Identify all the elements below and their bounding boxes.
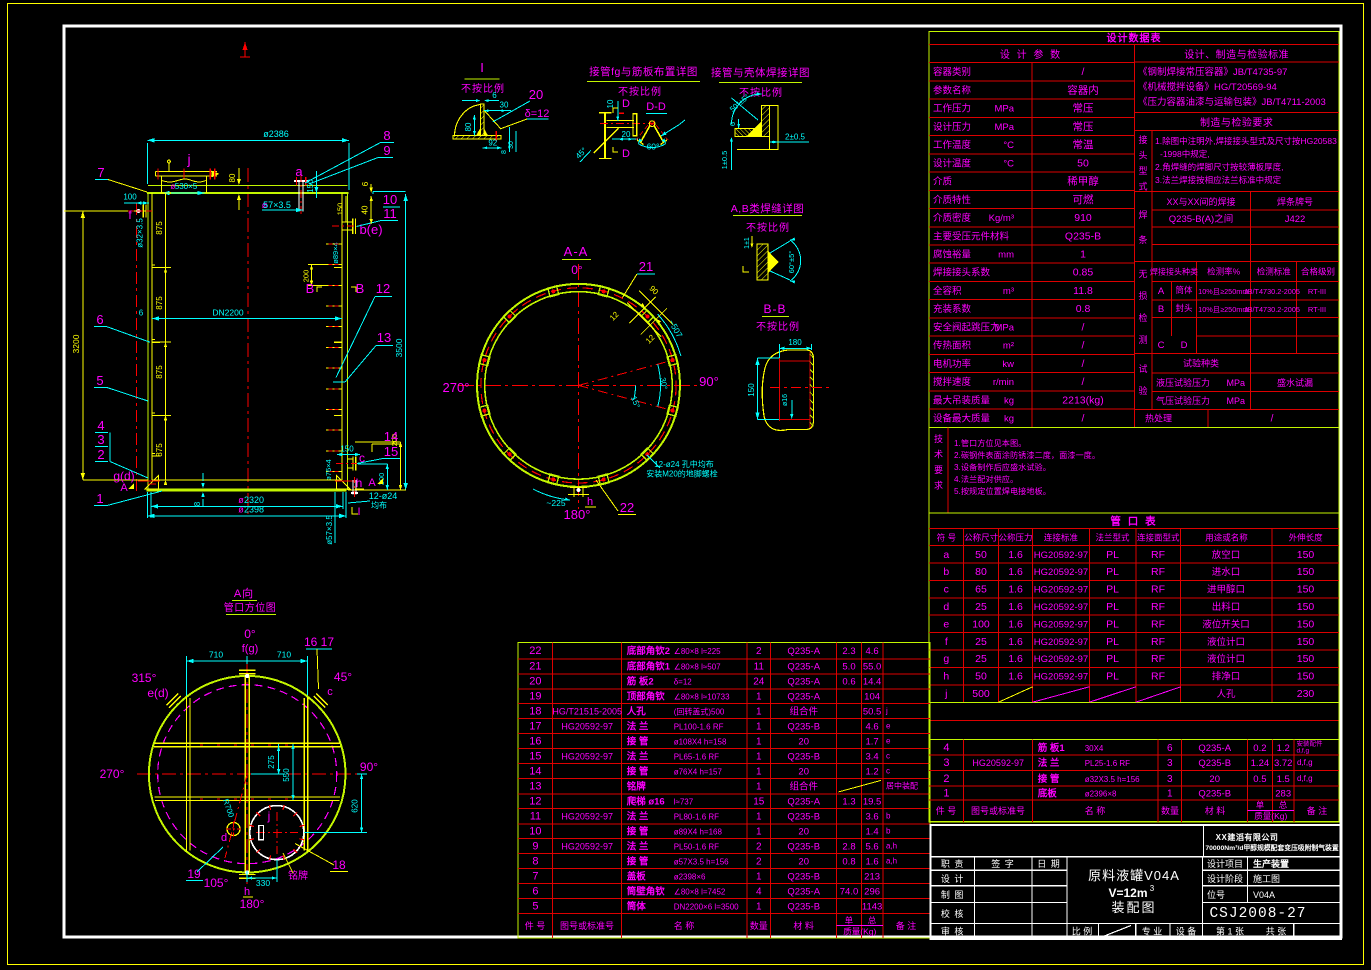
svg-text:A-A: A-A [564, 244, 589, 259]
svg-text:RF: RF [1151, 601, 1165, 613]
svg-text:RT-III: RT-III [1308, 287, 1326, 296]
svg-text:2.8: 2.8 [842, 842, 855, 853]
svg-text:筒体: 筒体 [1175, 285, 1193, 295]
svg-text:HG20592-97: HG20592-97 [972, 758, 1024, 768]
svg-text:RF: RF [1151, 653, 1165, 665]
svg-text:Q235-B: Q235-B [787, 872, 820, 883]
svg-text:接 管: 接 管 [627, 765, 649, 777]
svg-text:°C: °C [1003, 158, 1014, 169]
svg-text:HG20592-97: HG20592-97 [1034, 654, 1088, 665]
svg-text:Q235-B: Q235-B [1198, 758, 1231, 769]
svg-text:顶部角钦: 顶部角钦 [627, 691, 666, 703]
svg-text:3: 3 [1150, 884, 1155, 893]
svg-text:法 兰: 法 兰 [627, 841, 649, 853]
svg-text:I: I [357, 506, 360, 518]
svg-text:A向: A向 [234, 586, 254, 600]
svg-text:1.6: 1.6 [1008, 566, 1023, 578]
svg-text:70000Nm³/d甲醇规模配套变压吸附制气装置: 70000Nm³/d甲醇规模配套变压吸附制气装置 [1205, 843, 1339, 852]
svg-text:外伸长度: 外伸长度 [1289, 533, 1324, 543]
svg-text:接管与壳体焊接详图: 接管与壳体焊接详图 [711, 66, 810, 79]
svg-text:生产装置: 生产装置 [1253, 858, 1289, 869]
svg-text:d,f,g: d,f,g [1297, 774, 1313, 783]
svg-text:/: / [1082, 376, 1085, 388]
svg-text:Q235-B: Q235-B [787, 842, 820, 853]
svg-text:ø16: ø16 [782, 394, 789, 406]
svg-text:150: 150 [747, 383, 756, 397]
svg-text:DN2200×6 l=3500: DN2200×6 l=3500 [674, 902, 739, 911]
svg-text:5: 5 [96, 373, 103, 388]
svg-text:盛水试漏: 盛水试漏 [1277, 377, 1313, 388]
svg-text:50: 50 [1077, 157, 1089, 169]
svg-text:V=12m: V=12m [1108, 886, 1147, 900]
svg-text:b: b [943, 566, 949, 578]
svg-text:HG20592-97: HG20592-97 [561, 842, 613, 852]
svg-text:介质: 介质 [933, 176, 953, 188]
svg-text:230: 230 [1297, 688, 1315, 700]
svg-text:Q235-B(A)之间: Q235-B(A)之间 [1169, 213, 1233, 225]
svg-text:XX建滔有限公司: XX建滔有限公司 [1216, 832, 1279, 842]
svg-text:工作温度: 工作温度 [933, 139, 972, 151]
svg-text:设计项目: 设计项目 [1207, 858, 1243, 869]
svg-text:常压: 常压 [1073, 102, 1095, 115]
svg-text:总: 总 [1279, 800, 1288, 810]
svg-text:液位开关口: 液位开关口 [1202, 618, 1250, 630]
svg-text:21: 21 [639, 259, 653, 274]
svg-text:HG20592-97: HG20592-97 [1034, 672, 1088, 683]
svg-text:盖板: 盖板 [627, 871, 647, 883]
svg-text:焊: 焊 [1138, 209, 1147, 220]
svg-text:D: D [622, 98, 630, 110]
svg-text:7: 7 [532, 871, 538, 883]
svg-text:HG20592-97: HG20592-97 [1034, 567, 1088, 578]
svg-text:RF: RF [1151, 618, 1165, 630]
svg-text:10%且≥250mm: 10%且≥250mm [1198, 287, 1248, 296]
svg-text:d: d [943, 601, 949, 613]
svg-text:19: 19 [529, 691, 541, 703]
svg-text:术: 术 [934, 449, 943, 460]
svg-text:4.6: 4.6 [865, 722, 878, 733]
svg-text:求: 求 [934, 480, 943, 491]
svg-text:底部角钦1: 底部角钦1 [626, 661, 671, 673]
svg-text:最大吊装质量: 最大吊装质量 [933, 394, 991, 406]
svg-text:XX与XX间的焊接: XX与XX间的焊接 [1166, 196, 1235, 207]
svg-text:试: 试 [1138, 363, 1147, 374]
svg-text:j: j [885, 707, 888, 716]
svg-text:比 例: 比 例 [1072, 926, 1093, 937]
svg-text:11: 11 [530, 811, 541, 823]
svg-text:kg: kg [1004, 414, 1014, 425]
svg-text:名 称: 名 称 [674, 920, 695, 931]
svg-text:80: 80 [228, 173, 237, 182]
svg-text:出料口: 出料口 [1212, 601, 1241, 613]
svg-text:2: 2 [756, 842, 762, 853]
svg-text:4: 4 [943, 742, 949, 754]
svg-text:3500: 3500 [394, 338, 404, 357]
svg-text:PL: PL [1106, 618, 1119, 630]
svg-text:《钢制焊接常压容器》JB/T4735-97: 《钢制焊接常压容器》JB/T4735-97 [1138, 66, 1287, 78]
svg-text:管 口 表: 管 口 表 [1110, 515, 1157, 528]
svg-text:6: 6 [1167, 743, 1173, 754]
svg-text:HG20592-97: HG20592-97 [561, 722, 613, 732]
svg-text:270°: 270° [443, 380, 470, 395]
svg-text:设计压力: 设计压力 [933, 121, 971, 133]
svg-text:组合件: 组合件 [789, 781, 818, 793]
svg-text:3: 3 [943, 757, 949, 769]
svg-text:m²: m² [1003, 341, 1014, 352]
svg-text:150: 150 [1297, 584, 1315, 596]
svg-text:8: 8 [532, 856, 538, 868]
svg-text:100: 100 [972, 618, 990, 630]
svg-text:20: 20 [1209, 774, 1220, 785]
svg-text:制造与检验要求: 制造与检验要求 [1200, 116, 1274, 129]
svg-text:150: 150 [1297, 601, 1315, 613]
svg-text:铭牌: 铭牌 [288, 869, 308, 882]
svg-text:Q235-B: Q235-B [787, 901, 820, 912]
svg-text:100: 100 [123, 193, 137, 202]
svg-text:60°: 60° [647, 142, 660, 152]
svg-text:10%且≥250mm: 10%且≥250mm [1198, 305, 1248, 314]
svg-text:/: / [1082, 321, 1085, 333]
svg-text:65: 65 [975, 584, 987, 596]
svg-text:1: 1 [756, 766, 762, 777]
svg-text:1: 1 [1167, 788, 1173, 799]
svg-text:c: c [886, 751, 890, 760]
svg-text:Q235-A: Q235-A [787, 797, 820, 808]
svg-text:c: c [886, 766, 890, 775]
svg-text:爬梯 ø16: 爬梯 ø16 [626, 796, 665, 808]
svg-text:3.72: 3.72 [1274, 758, 1293, 769]
svg-text:1.6: 1.6 [1008, 636, 1023, 648]
svg-text:875: 875 [155, 221, 164, 235]
svg-text:公称尺寸: 公称尺寸 [964, 533, 999, 543]
svg-text:PL: PL [1106, 566, 1119, 578]
svg-text:1: 1 [96, 491, 103, 506]
svg-text:要: 要 [934, 465, 943, 475]
svg-text:Q235-A: Q235-A [787, 646, 820, 657]
svg-text:22: 22 [620, 500, 634, 515]
svg-text:MPa: MPa [994, 104, 1014, 115]
svg-text:HG20592-97: HG20592-97 [1034, 550, 1088, 561]
svg-text:/: / [1082, 358, 1085, 370]
svg-text:m³: m³ [1003, 286, 1014, 297]
svg-text:180°: 180° [564, 507, 591, 522]
svg-text:25: 25 [975, 653, 987, 665]
svg-text:DN2200: DN2200 [212, 308, 243, 318]
svg-text:名 称: 名 称 [1085, 805, 1106, 816]
svg-text:16 17: 16 17 [304, 635, 334, 649]
svg-text:1: 1 [1080, 249, 1086, 261]
svg-text:PL50-1.6 RF: PL50-1.6 RF [674, 843, 719, 852]
svg-text:4: 4 [97, 418, 104, 433]
svg-text:A,B类焊缝详图: A,B类焊缝详图 [731, 202, 804, 215]
svg-text:2: 2 [756, 857, 762, 868]
svg-text:封头: 封头 [1175, 303, 1193, 313]
svg-text:1: 1 [756, 692, 762, 703]
svg-text:50: 50 [975, 671, 987, 683]
svg-text:11: 11 [383, 206, 397, 221]
svg-text:1: 1 [756, 736, 762, 747]
svg-text:8: 8 [193, 501, 202, 506]
svg-text:12-ø24: 12-ø24 [369, 491, 398, 501]
svg-text:传热面积: 传热面积 [933, 340, 972, 352]
svg-text:e: e [886, 722, 891, 731]
svg-text:213: 213 [864, 872, 880, 883]
svg-text:公称压力: 公称压力 [998, 533, 1032, 543]
svg-text:6: 6 [96, 312, 103, 327]
svg-text:r/min: r/min [993, 377, 1014, 388]
svg-text:不按比例: 不按比例 [618, 85, 662, 98]
svg-text:Q235-A: Q235-A [787, 662, 820, 673]
svg-text:150: 150 [340, 445, 354, 454]
svg-text:275: 275 [267, 755, 276, 769]
svg-text:ø108X4 h=158: ø108X4 h=158 [674, 737, 727, 746]
svg-text:设备最大质量: 设备最大质量 [933, 413, 991, 425]
svg-text:3.法兰焊接按相应法兰标准中规定: 3.法兰焊接按相应法兰标准中规定 [1155, 175, 1282, 185]
svg-text:充装系数: 充装系数 [933, 303, 972, 315]
svg-text:单: 单 [1256, 800, 1265, 810]
svg-text:60°±5°: 60°±5° [787, 251, 796, 274]
svg-text:13: 13 [529, 781, 541, 793]
svg-text:20: 20 [798, 766, 809, 777]
svg-text:10: 10 [606, 99, 615, 108]
svg-text:PL: PL [1106, 601, 1119, 613]
svg-text:20: 20 [529, 676, 541, 688]
svg-text:j: j [186, 151, 190, 167]
svg-text:15: 15 [529, 750, 541, 762]
svg-text:6: 6 [728, 122, 737, 126]
svg-text:296: 296 [864, 886, 880, 897]
svg-text:HG20592-97: HG20592-97 [1034, 602, 1088, 613]
svg-text:图号或标准号: 图号或标准号 [560, 920, 614, 931]
svg-text:13: 13 [377, 330, 391, 345]
svg-text:搅拌速度: 搅拌速度 [933, 376, 972, 388]
svg-text:设 计: 设 计 [941, 873, 965, 884]
svg-text:24: 24 [753, 677, 765, 688]
svg-text:工作压力: 工作压力 [933, 103, 971, 115]
svg-text:焊接接头种类: 焊接接头种类 [1150, 267, 1198, 277]
svg-text:3.4: 3.4 [865, 751, 878, 762]
svg-text:第 1 张: 第 1 张 [1216, 926, 1244, 937]
svg-text:g(d): g(d) [113, 469, 134, 483]
svg-text:j: j [267, 809, 271, 823]
svg-text:排净口: 排净口 [1212, 671, 1241, 683]
svg-text:ø32X3.5 h=156: ø32X3.5 h=156 [1085, 775, 1140, 784]
svg-text:热处理: 热处理 [1145, 413, 1172, 424]
svg-text:30: 30 [508, 141, 515, 149]
svg-text:12-ø24 孔中均布: 12-ø24 孔中均布 [654, 459, 714, 469]
svg-text:105°: 105° [204, 876, 229, 890]
svg-text:PL80-1.6 RF: PL80-1.6 RF [674, 813, 719, 822]
svg-text:1: 1 [756, 872, 762, 883]
svg-text:HG20592-97: HG20592-97 [1034, 637, 1088, 648]
svg-text:550: 550 [282, 768, 291, 782]
svg-text:铭牌: 铭牌 [627, 781, 647, 793]
svg-text:150: 150 [336, 203, 345, 216]
svg-text:Kg/m³: Kg/m³ [989, 213, 1014, 224]
svg-text:J422: J422 [1285, 214, 1306, 225]
svg-text:进甲醇口: 进甲醇口 [1207, 584, 1245, 596]
svg-text:h: h [943, 671, 949, 683]
svg-text:RT-III: RT-III [1308, 305, 1326, 314]
svg-text:进水口: 进水口 [1212, 566, 1241, 578]
svg-text:液位计口: 液位计口 [1207, 653, 1245, 665]
svg-text:55.0: 55.0 [863, 662, 882, 673]
svg-text:CSJ2008-27: CSJ2008-27 [1209, 906, 1306, 922]
svg-text:法兰型式: 法兰型式 [1095, 533, 1130, 543]
svg-text:283: 283 [1275, 788, 1291, 799]
svg-text:0.2: 0.2 [1253, 743, 1266, 754]
svg-text:专 业: 专 业 [1142, 926, 1163, 937]
svg-text:不按比例: 不按比例 [461, 82, 505, 95]
svg-text:检测率%: 检测率% [1207, 267, 1241, 277]
svg-text:19: 19 [187, 867, 201, 881]
svg-text:1.管口方位见本图。: 1.管口方位见本图。 [954, 438, 1026, 448]
svg-text:g: g [943, 653, 949, 665]
svg-text:2213(kg): 2213(kg) [1062, 394, 1103, 406]
svg-text:δ=12: δ=12 [674, 678, 693, 687]
svg-text:ø89X4 h=168: ø89X4 h=168 [674, 828, 723, 837]
svg-text:5.按规定位置焊电接地板。: 5.按规定位置焊电接地板。 [954, 486, 1051, 496]
svg-text:1.3: 1.3 [842, 797, 855, 808]
svg-text:1.2: 1.2 [865, 766, 878, 777]
svg-text:3: 3 [97, 432, 104, 447]
svg-text:A: A [368, 477, 376, 489]
svg-text:b: b [886, 827, 891, 836]
svg-text:3200: 3200 [71, 334, 81, 353]
svg-text:容器类别: 容器类别 [933, 66, 971, 78]
svg-text:e: e [943, 618, 949, 630]
svg-text:8: 8 [501, 150, 508, 154]
svg-text:7: 7 [97, 165, 104, 180]
svg-text:90°: 90° [360, 760, 378, 774]
svg-text:液压试验压力: 液压试验压力 [1156, 377, 1210, 388]
svg-text:人孔: 人孔 [627, 706, 647, 718]
svg-text:104: 104 [864, 692, 880, 703]
svg-text:MPa: MPa [994, 122, 1014, 133]
svg-text:e: e [886, 736, 891, 745]
svg-text:0.8: 0.8 [842, 857, 855, 868]
svg-text:19.5: 19.5 [863, 797, 882, 808]
svg-text:原料液罐V04A: 原料液罐V04A [1088, 868, 1180, 883]
svg-text:HG20592-97: HG20592-97 [1034, 619, 1088, 630]
svg-text:连接标准: 连接标准 [1044, 533, 1079, 543]
svg-text:用途或名称: 用途或名称 [1205, 533, 1248, 543]
svg-text:kw: kw [1002, 359, 1014, 370]
svg-text:2: 2 [97, 447, 104, 462]
svg-text:接 管: 接 管 [627, 826, 649, 838]
svg-text:筋 板2: 筋 板2 [626, 676, 654, 688]
svg-text:ø57X3.5 h=156: ø57X3.5 h=156 [674, 858, 729, 867]
svg-text:4.法兰配对供应。: 4.法兰配对供应。 [954, 474, 1018, 484]
svg-text:2: 2 [943, 773, 949, 785]
svg-text:底板: 底板 [1037, 787, 1058, 799]
svg-text:《机械搅拌设备》HG/T20569-94: 《机械搅拌设备》HG/T20569-94 [1138, 81, 1277, 93]
svg-text:875: 875 [155, 365, 164, 379]
svg-text:D: D [622, 148, 630, 160]
svg-text:审 核: 审 核 [941, 926, 965, 937]
svg-text:PL: PL [1106, 636, 1119, 648]
svg-text:损: 损 [1138, 290, 1147, 301]
svg-text:验: 验 [1138, 385, 1147, 396]
svg-text:f: f [945, 636, 948, 648]
svg-text:d,f,g: d,f,g [1297, 758, 1313, 767]
svg-text:16: 16 [529, 735, 541, 747]
svg-text:∠80×8 l=7452: ∠80×8 l=7452 [674, 887, 726, 896]
svg-text:-1998中规定,: -1998中规定, [1160, 149, 1210, 159]
svg-text:Q235-A: Q235-A [1198, 743, 1231, 754]
svg-text:/: / [1082, 413, 1085, 425]
svg-text:RF: RF [1151, 549, 1165, 561]
svg-text:电机功率: 电机功率 [933, 358, 972, 370]
svg-text:件 号: 件 号 [936, 805, 957, 816]
svg-text:50: 50 [975, 549, 987, 561]
svg-text:2320: 2320 [244, 495, 264, 505]
svg-text:V04A: V04A [1253, 890, 1275, 900]
svg-text:MPa: MPa [1226, 396, 1245, 406]
svg-text:检: 检 [1138, 312, 1147, 323]
svg-text:安装配件: 安装配件 [1297, 739, 1324, 748]
svg-text:液位计口: 液位计口 [1207, 636, 1245, 648]
svg-text:ø2396×8: ø2396×8 [1085, 789, 1117, 798]
svg-text:710: 710 [277, 650, 291, 660]
svg-text:数量: 数量 [1161, 805, 1179, 816]
svg-text:6: 6 [139, 309, 144, 318]
svg-text:材 料: 材 料 [793, 920, 814, 931]
svg-text:居中装配: 居中装配 [886, 781, 918, 791]
svg-text:符 号: 符 号 [937, 533, 956, 543]
svg-text:Q235-A: Q235-A [787, 677, 820, 688]
svg-text:接 管: 接 管 [1038, 773, 1060, 785]
svg-text:容器内: 容器内 [1067, 83, 1099, 96]
svg-text:25: 25 [975, 601, 987, 613]
svg-text:校 核: 校 核 [941, 908, 965, 919]
svg-text:/: / [1082, 340, 1085, 352]
svg-text:a,h: a,h [886, 842, 897, 851]
svg-text:ø76×4: ø76×4 [324, 459, 333, 480]
svg-text:PL: PL [1106, 549, 1119, 561]
svg-text:12: 12 [376, 281, 390, 296]
svg-text:180: 180 [788, 338, 802, 347]
svg-text:0.85: 0.85 [1073, 267, 1094, 279]
svg-text:2.3: 2.3 [842, 646, 855, 657]
svg-text:11: 11 [754, 662, 765, 673]
svg-text:330: 330 [256, 878, 270, 888]
svg-text:c: c [944, 584, 949, 596]
svg-text:c: c [327, 686, 333, 698]
svg-text:头: 头 [1138, 151, 1147, 161]
svg-text:20: 20 [798, 736, 809, 747]
svg-text:2398: 2398 [244, 505, 264, 515]
svg-text:B: B [1158, 304, 1164, 315]
svg-text:MPa: MPa [1226, 378, 1245, 388]
svg-text:总: 总 [868, 916, 877, 926]
svg-text:焊条牌号: 焊条牌号 [1277, 196, 1313, 207]
svg-text:f(g): f(g) [242, 643, 259, 655]
svg-text:检测标准: 检测标准 [1257, 267, 1292, 277]
svg-text:件 号: 件 号 [525, 920, 546, 931]
svg-text:测: 测 [1138, 335, 1147, 345]
svg-text:Q235-A: Q235-A [787, 886, 820, 897]
svg-text:530×5: 530×5 [175, 182, 198, 191]
svg-text:筒体: 筒体 [626, 900, 647, 912]
svg-text:h: h [244, 886, 250, 898]
svg-text:14: 14 [384, 429, 398, 444]
svg-text:620: 620 [351, 799, 360, 813]
svg-text:kg: kg [1004, 395, 1014, 406]
svg-text:0°: 0° [244, 627, 256, 641]
svg-text:δ=12: δ=12 [525, 108, 550, 120]
svg-text:数量: 数量 [750, 920, 768, 931]
